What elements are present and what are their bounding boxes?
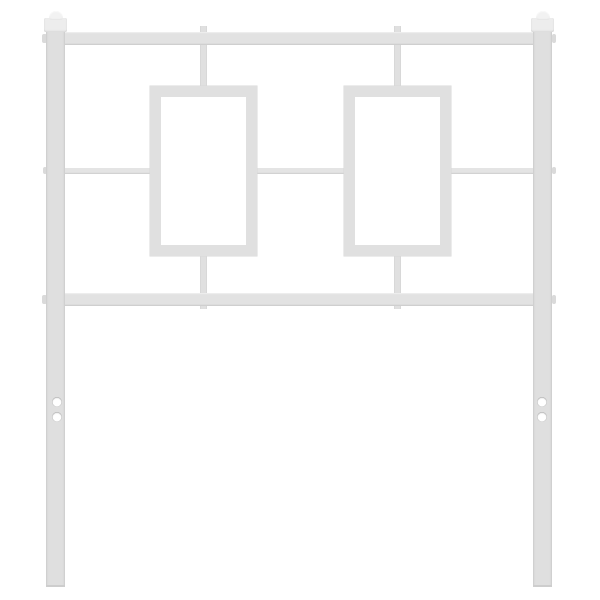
right-post	[533, 28, 552, 587]
mounting-hole-right-leg-lower	[537, 412, 547, 422]
top-rail	[58, 32, 542, 45]
left-ornament-frame	[150, 86, 257, 256]
right-finial-dome	[536, 11, 550, 20]
nub-right-post-top-rail	[552, 34, 557, 43]
crossbar-middle-segment	[253, 168, 347, 174]
right-finial-block	[531, 18, 554, 32]
crossbar-right-segment	[447, 168, 539, 174]
mounting-hole-left-leg-lower	[52, 412, 62, 422]
mounting-hole-left-leg-upper	[52, 397, 62, 407]
mounting-hole-right-leg-upper	[537, 397, 547, 407]
left-post	[46, 28, 65, 587]
right-leg-bottom-edge	[533, 585, 552, 587]
left-ornament-frame-opening	[161, 97, 246, 245]
crossbar-left-segment	[62, 168, 154, 174]
right-ornament-frame-opening	[355, 97, 440, 245]
left-finial-block	[44, 18, 67, 32]
bottom-rail	[58, 293, 542, 306]
left-leg-bottom-edge	[46, 585, 65, 587]
nub-right-post-bottom-rail	[552, 295, 557, 304]
right-ornament-frame	[344, 86, 451, 256]
left-finial-dome	[49, 11, 63, 20]
nub-right-post-crossbar	[552, 167, 556, 175]
headboard-product-image	[0, 0, 600, 600]
